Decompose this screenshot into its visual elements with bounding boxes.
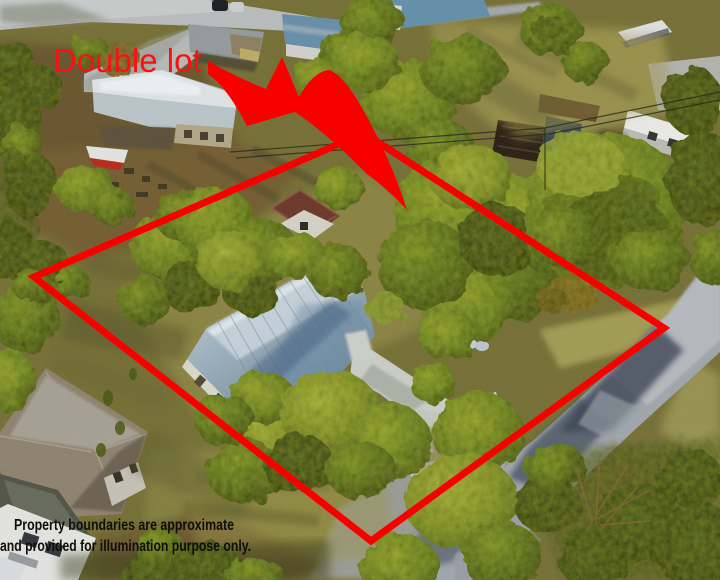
- svg-text:and provided for illumination: and provided for illumination purpose on…: [0, 538, 251, 555]
- svg-text:Property boundaries are approx: Property boundaries are approximate: [14, 517, 234, 534]
- svg-text:Double lot: Double lot: [53, 42, 202, 79]
